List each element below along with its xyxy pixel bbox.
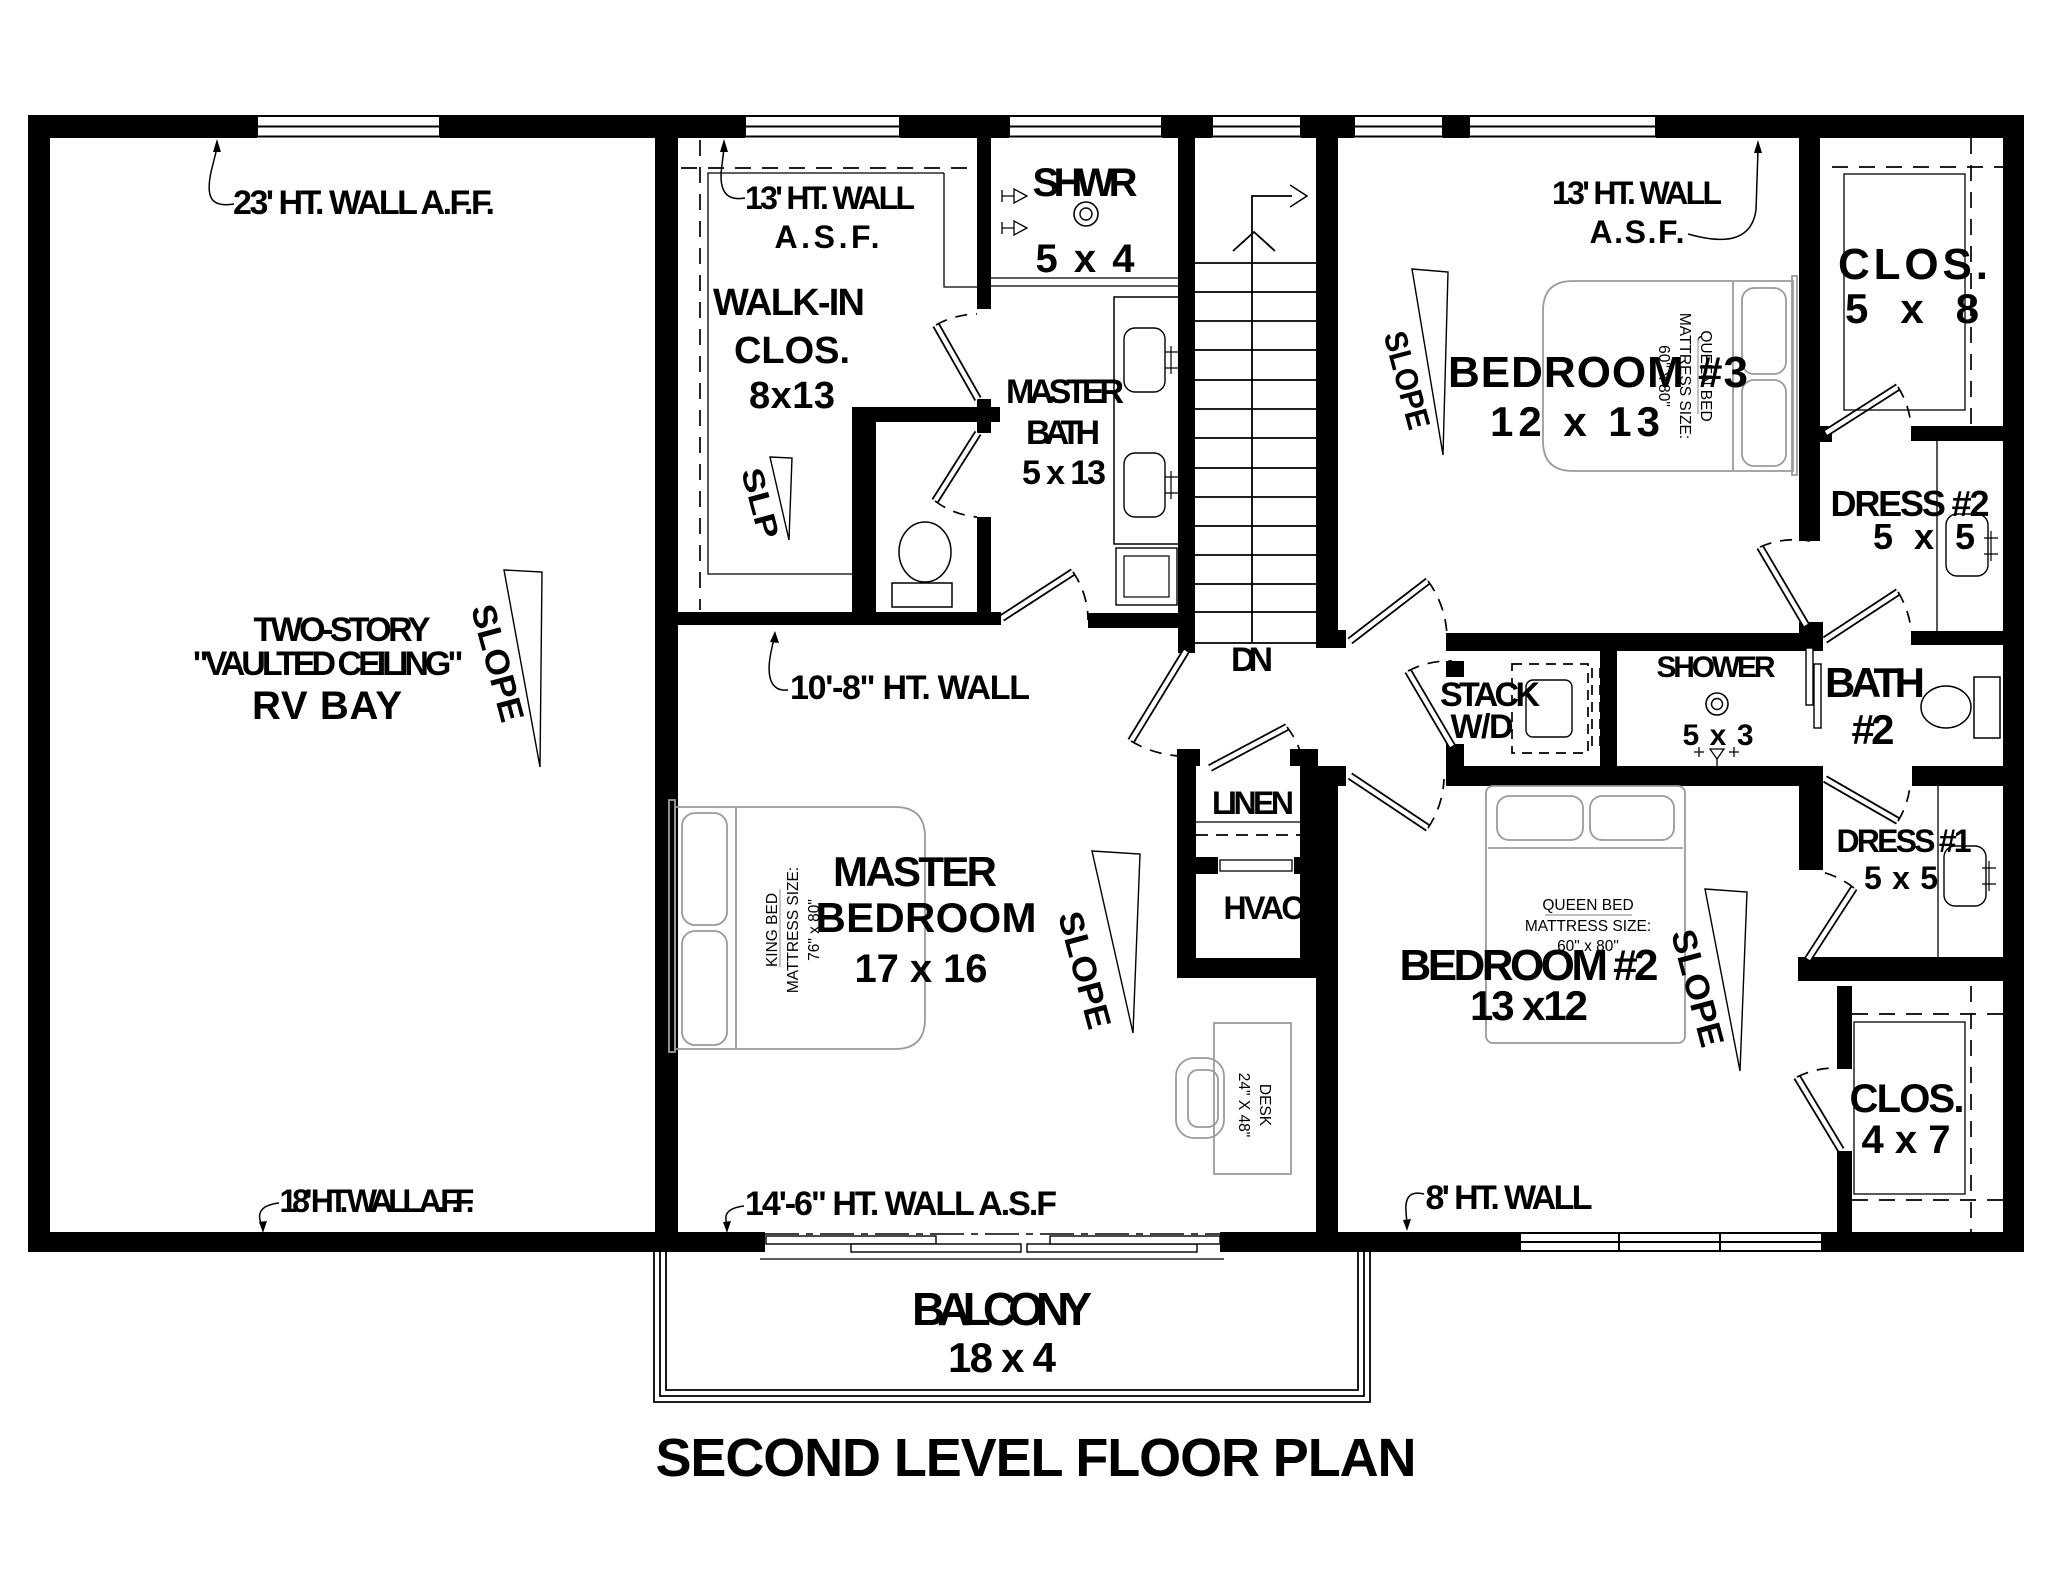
svg-text:23' HT. WALL A.F.F.: 23' HT. WALL A.F.F. <box>233 184 495 222</box>
svg-text:RV BAY: RV BAY <box>252 684 402 728</box>
svg-text:"VAULTED CEILING": "VAULTED CEILING" <box>193 645 464 683</box>
svg-text:MATTRESS SIZE:: MATTRESS SIZE: <box>1676 313 1693 439</box>
svg-text:5 x 4: 5 x 4 <box>1036 237 1136 281</box>
svg-text:18 x 4: 18 x 4 <box>948 1334 1057 1381</box>
svg-text:10'-8" HT. WALL: 10'-8" HT. WALL <box>790 669 1030 707</box>
svg-text:MATTRESS SIZE:: MATTRESS SIZE: <box>785 867 802 993</box>
svg-text:8x13: 8x13 <box>749 375 835 417</box>
svg-text:5 x 3: 5 x 3 <box>1683 719 1754 752</box>
svg-text:BATH: BATH <box>1026 414 1100 452</box>
svg-text:14'-6" HT. WALL A.S.F: 14'-6" HT. WALL A.S.F <box>745 1185 1057 1223</box>
svg-text:17 x 16: 17 x 16 <box>855 947 988 991</box>
svg-text:MATTRESS SIZE:: MATTRESS SIZE: <box>1525 918 1651 935</box>
svg-text:5 x 8: 5 x 8 <box>1845 285 1979 332</box>
svg-text:SHWR: SHWR <box>1033 161 1138 205</box>
svg-text:18' HT. WALL A.F.F.: 18' HT. WALL A.F.F. <box>280 1183 475 1219</box>
svg-text:5 x 5: 5 x 5 <box>1864 860 1938 896</box>
svg-text:DN: DN <box>1231 641 1273 679</box>
svg-text:KING BED: KING BED <box>764 893 781 967</box>
svg-text:24" X 48": 24" X 48" <box>1235 1073 1252 1137</box>
svg-text:MASTER: MASTER <box>1006 373 1124 411</box>
svg-text:13' HT. WALL: 13' HT. WALL <box>745 180 915 216</box>
svg-text:CLOS.: CLOS. <box>1850 1077 1965 1121</box>
svg-text:60" x 80": 60" x 80" <box>1655 345 1672 407</box>
svg-text:HVAC: HVAC <box>1224 890 1305 926</box>
svg-text:DRESS #1: DRESS #1 <box>1837 823 1972 859</box>
svg-text:4 x 7: 4 x 7 <box>1862 1118 1951 1162</box>
svg-text:W/D: W/D <box>1451 708 1514 746</box>
svg-text:BEDROOM: BEDROOM <box>816 894 1037 941</box>
svg-text:SECOND LEVEL FLOOR PLAN: SECOND LEVEL FLOOR PLAN <box>656 1428 1417 1488</box>
svg-text:CLOS.: CLOS. <box>1838 240 1988 289</box>
svg-text:#2: #2 <box>1852 706 1895 753</box>
svg-text:TWO-STORY: TWO-STORY <box>254 611 431 649</box>
svg-text:8' HT. WALL: 8' HT. WALL <box>1426 1179 1593 1217</box>
svg-text:MASTER: MASTER <box>833 848 997 895</box>
svg-text:5 x 5: 5 x 5 <box>1873 516 1975 557</box>
svg-text:WALK-IN: WALK-IN <box>713 282 865 324</box>
svg-text:13' HT. WALL: 13' HT. WALL <box>1552 175 1722 211</box>
svg-text:BALCONY: BALCONY <box>912 1283 1092 1335</box>
svg-text:A.S.F.: A.S.F. <box>775 219 880 255</box>
svg-text:13 x12: 13 x12 <box>1470 982 1588 1029</box>
svg-text:CLOS.: CLOS. <box>734 330 850 372</box>
svg-text:SHOWER: SHOWER <box>1657 651 1776 684</box>
svg-text:BATH: BATH <box>1825 659 1925 706</box>
svg-text:60" x 80": 60" x 80" <box>1557 938 1619 955</box>
svg-text:76" x 80": 76" x 80" <box>806 899 823 961</box>
svg-text:5 x 13: 5 x 13 <box>1022 454 1106 492</box>
svg-text:A.S.F.: A.S.F. <box>1590 214 1685 250</box>
svg-text:QUEEN BED: QUEEN BED <box>1697 330 1714 421</box>
svg-text:LINEN: LINEN <box>1212 785 1294 821</box>
svg-text:QUEEN BED: QUEEN BED <box>1542 897 1633 914</box>
svg-text:DESK: DESK <box>1256 1084 1273 1127</box>
